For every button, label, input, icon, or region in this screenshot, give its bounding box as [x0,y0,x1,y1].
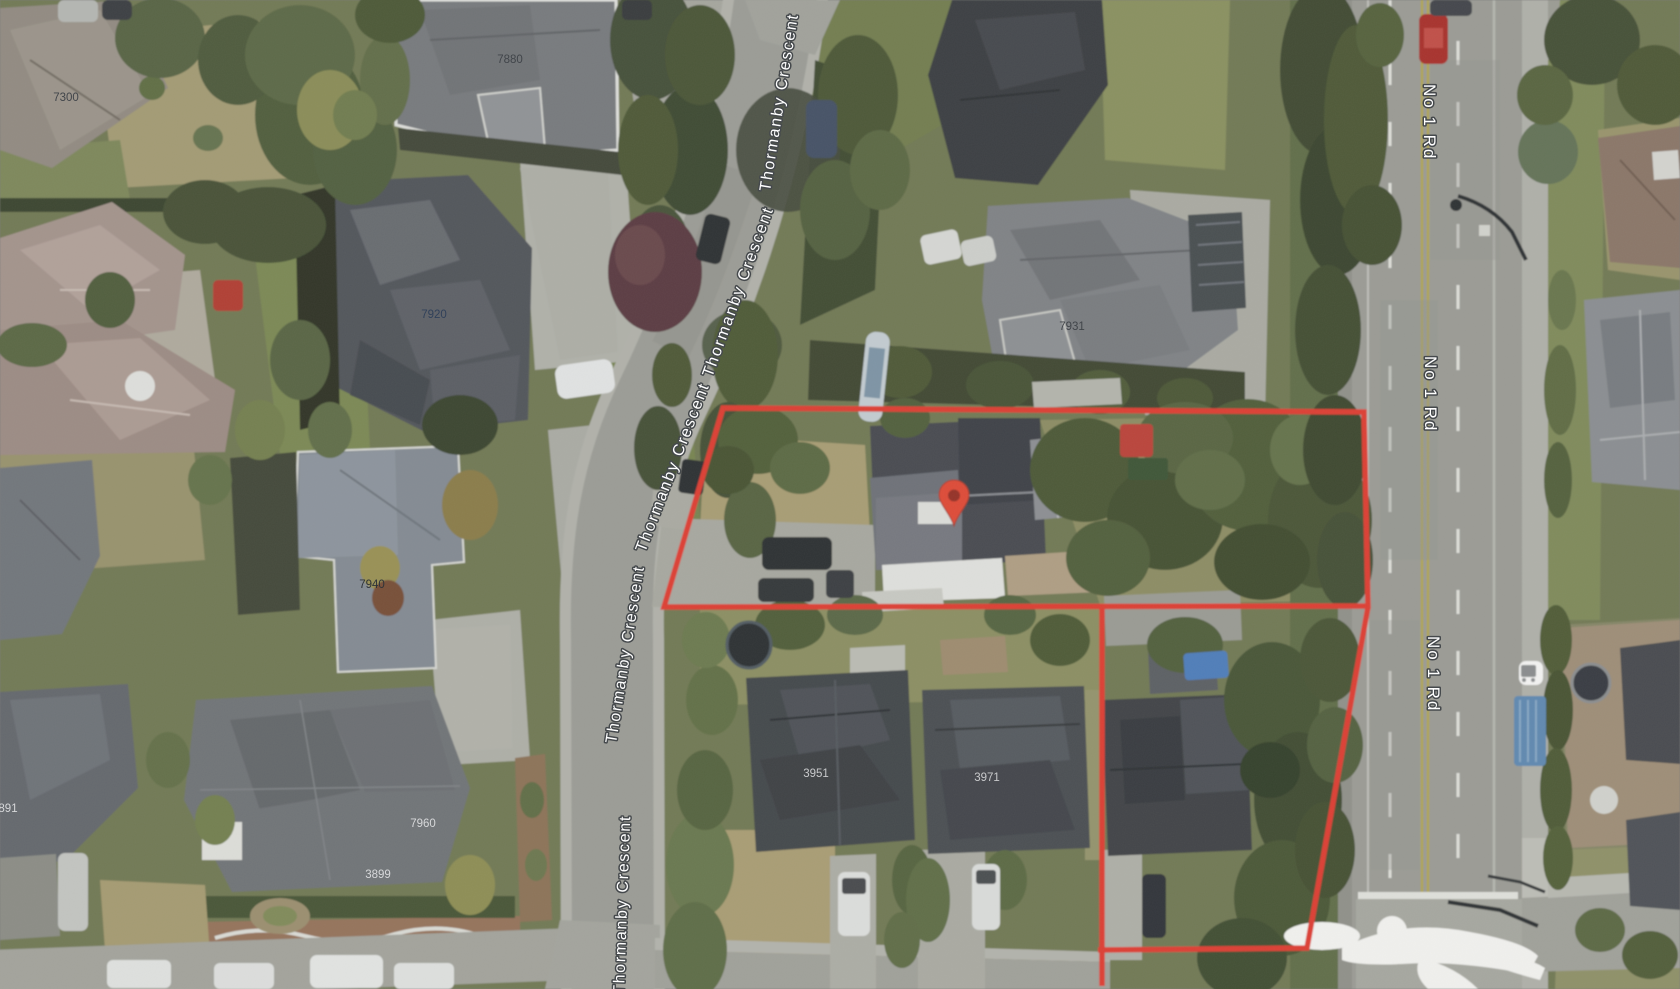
svg-text:7940: 7940 [359,579,385,591]
svg-text:7931: 7931 [1059,321,1085,333]
svg-text:7300: 7300 [53,92,79,104]
svg-text:3971: 3971 [974,772,1000,784]
svg-text:No 1 Rd: No 1 Rd [1421,356,1440,432]
svg-text:7920: 7920 [421,309,447,321]
svg-text:3899: 3899 [365,869,391,881]
svg-text:891: 891 [0,803,18,815]
svg-text:7880: 7880 [497,54,523,66]
svg-text:3951: 3951 [803,768,829,780]
svg-text:No 1 Rd: No 1 Rd [1420,84,1439,160]
svg-text:7960: 7960 [410,818,436,830]
svg-text:No 1 Rd: No 1 Rd [1424,636,1443,712]
svg-text:7911: 7911 [1015,104,1040,116]
